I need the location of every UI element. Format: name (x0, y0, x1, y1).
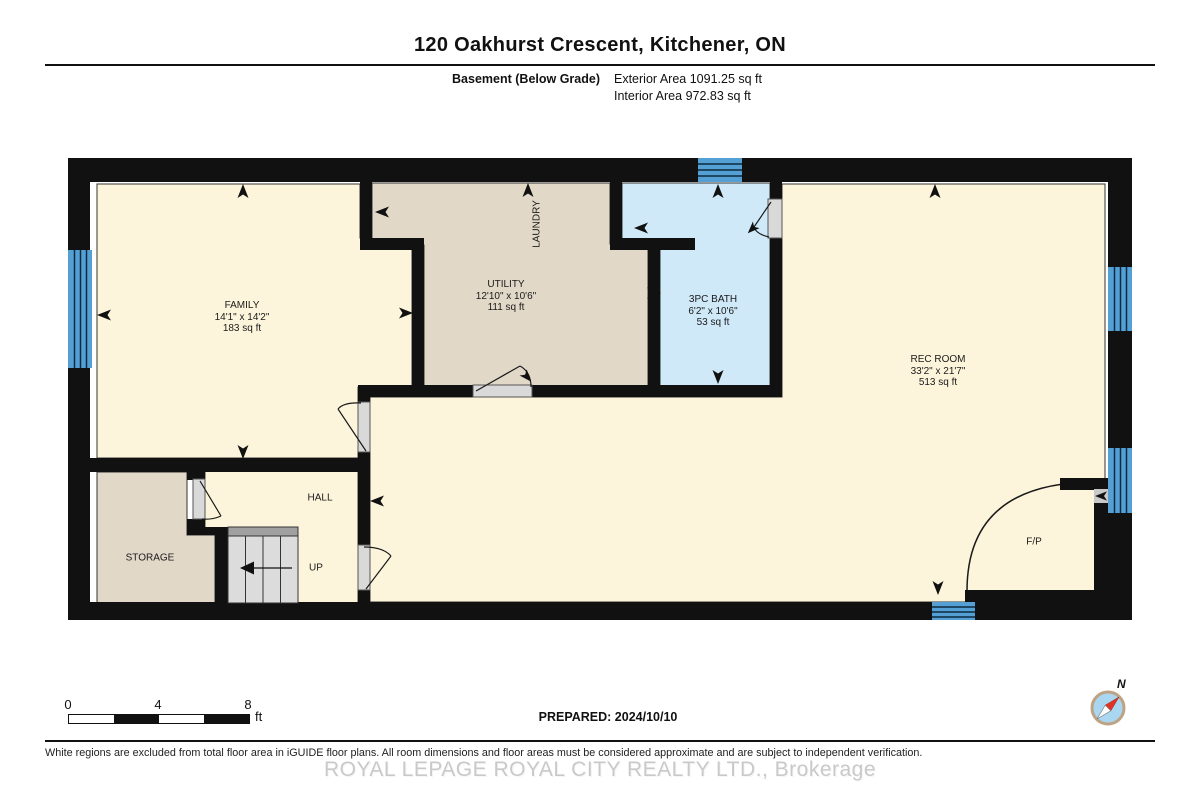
scale-bar (68, 714, 250, 724)
scale-tick-4: 4 (154, 697, 161, 712)
family-room-name: FAMILY (215, 300, 270, 312)
rec-room-name: REC ROOM (911, 354, 966, 366)
family-room-label: FAMILY 14'1" x 14'2" 183 sq ft (215, 300, 270, 335)
window-top-bath (698, 158, 742, 182)
fireplace-label: F/P (1026, 536, 1042, 548)
page-title: 120 Oakhurst Crescent, Kitchener, ON (0, 34, 1200, 57)
rec-room-dims: 33'2" x 21'7" (911, 365, 966, 377)
window-right-upper (1108, 267, 1132, 331)
stairs (228, 527, 298, 603)
utility-room-name: UTILITY (476, 279, 536, 291)
window-bottom (932, 602, 975, 620)
window-right-lower (1108, 448, 1132, 513)
rec-room-sqft: 513 sq ft (911, 377, 966, 389)
interior-area: Interior Area 972.83 sq ft (614, 89, 751, 103)
footer-divider (45, 740, 1155, 742)
scale-seg-2 (114, 715, 159, 723)
scale-seg-1 (69, 715, 114, 723)
bath-room-name: 3PC BATH (688, 294, 737, 306)
storage-room-label: STORAGE (126, 552, 175, 564)
scale-seg-3 (159, 715, 204, 723)
bath-room-dims: 6'2" x 10'6" (688, 305, 737, 317)
window-left (68, 250, 92, 368)
exterior-area: Exterior Area 1091.25 sq ft (614, 72, 762, 86)
floor-plan-page: 120 Oakhurst Crescent, Kitchener, ON Bas… (0, 0, 1200, 805)
header-divider (45, 64, 1155, 66)
family-room-dims: 14'1" x 14'2" (215, 311, 270, 323)
scale-tick-0: 0 (64, 697, 71, 712)
prepared-date: PREPARED: 2024/10/10 (498, 710, 718, 724)
floor-label: Basement (Below Grade) (300, 72, 600, 86)
bath-room-label: 3PC BATH 6'2" x 10'6" 53 sq ft (688, 294, 737, 329)
hall-label: HALL (307, 492, 332, 504)
rec-room-label: REC ROOM 33'2" x 21'7" 513 sq ft (911, 354, 966, 389)
bath-room-sqft: 53 sq ft (688, 317, 737, 329)
floor-plan-drawing (0, 0, 1200, 805)
utility-room-dims: 12'10" x 10'6" (476, 290, 536, 302)
compass (1092, 692, 1124, 724)
utility-room-sqft: 111 sq ft (476, 302, 536, 314)
brokerage-watermark: ROYAL LEPAGE ROYAL CITY REALTY LTD., Bro… (0, 758, 1200, 782)
utility-room-label: UTILITY 12'10" x 10'6" 111 sq ft (476, 279, 536, 314)
scale-tick-8: 8 (244, 697, 251, 712)
scale-unit: ft (255, 709, 262, 724)
family-room-sqft: 183 sq ft (215, 323, 270, 335)
laundry-label: LAUNDRY (531, 200, 543, 248)
scale-seg-4 (204, 715, 249, 723)
stairs-up-label: UP (309, 562, 323, 574)
compass-north-label: N (1117, 677, 1126, 691)
